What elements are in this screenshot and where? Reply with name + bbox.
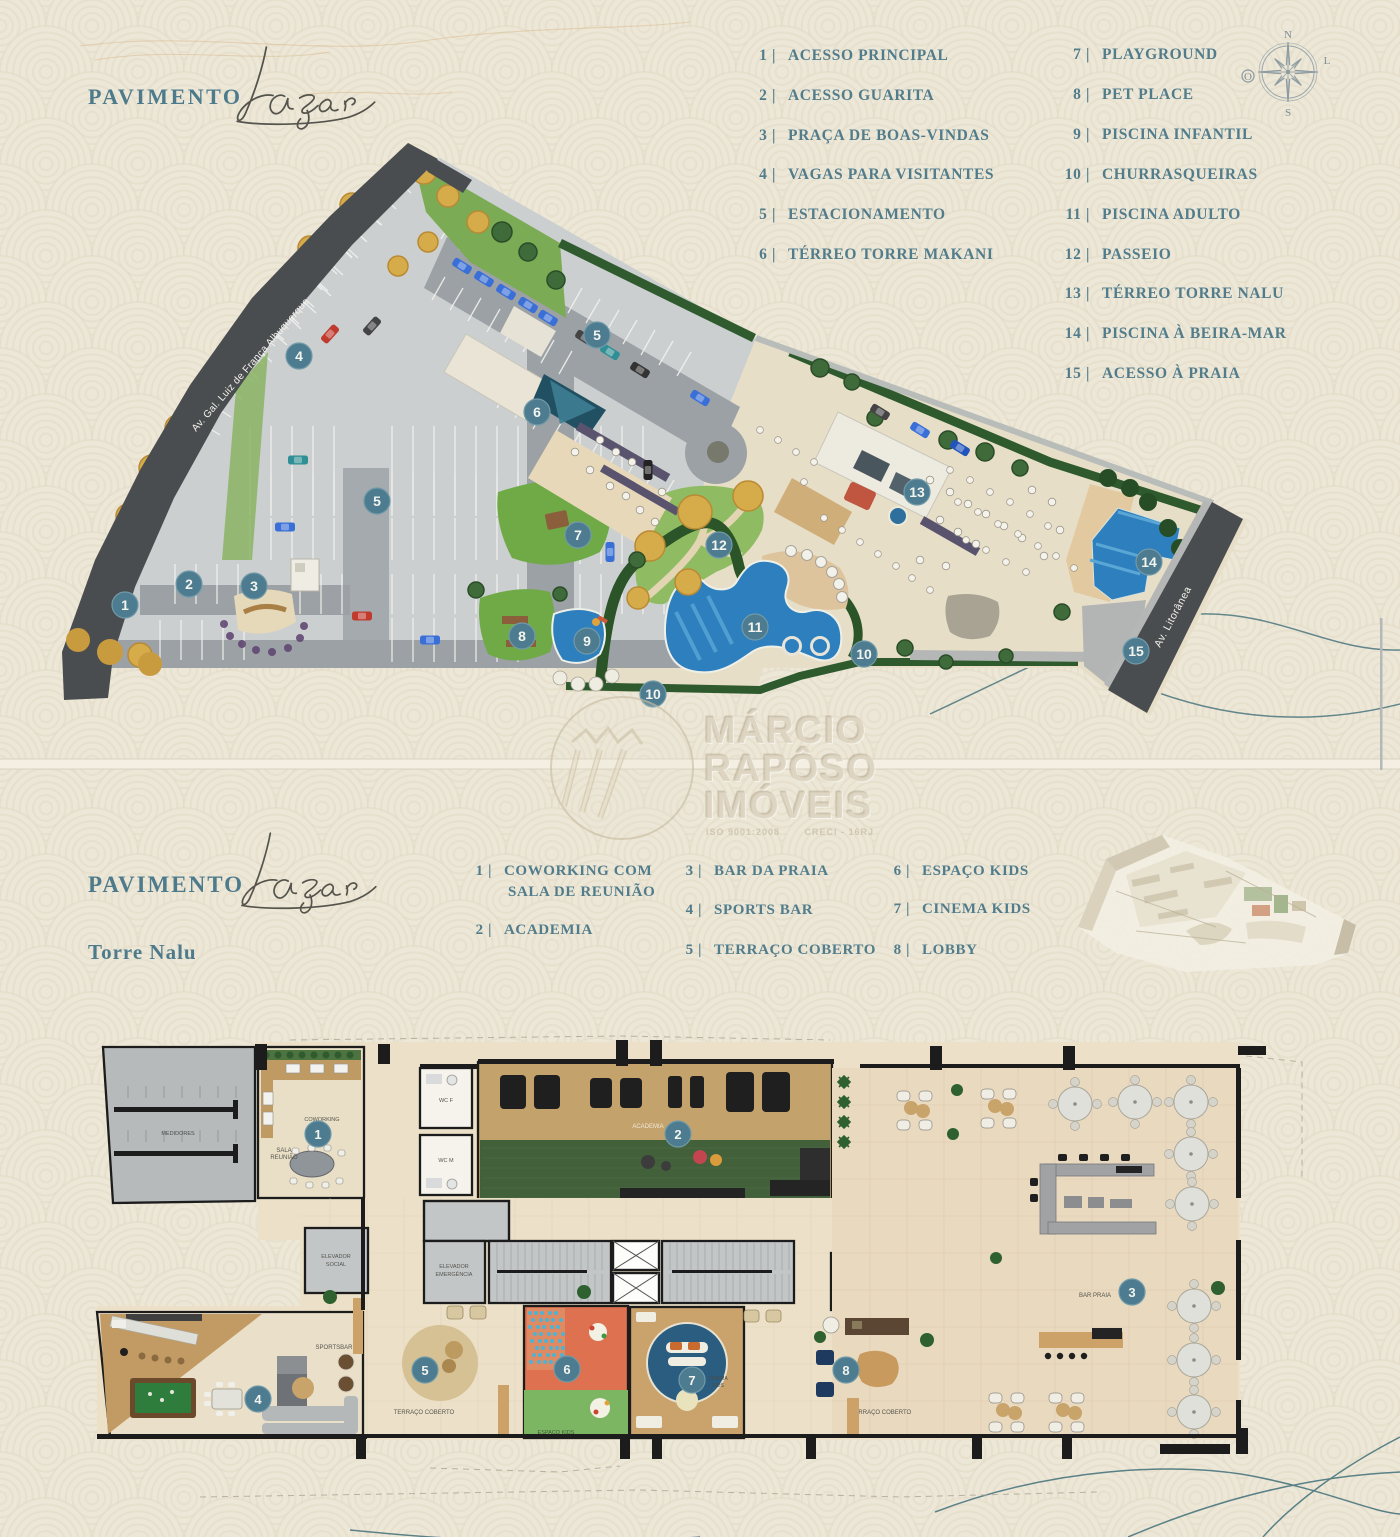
svg-text:12: 12 — [711, 537, 727, 553]
svg-text:10: 10 — [645, 686, 661, 702]
svg-text:1: 1 — [121, 597, 129, 613]
svg-text:5: 5 — [593, 327, 601, 343]
svg-text:8: 8 — [518, 628, 526, 644]
svg-text:4: 4 — [254, 1392, 262, 1407]
svg-text:6: 6 — [533, 404, 541, 420]
svg-text:15: 15 — [1128, 643, 1144, 659]
svg-text:L: L — [1324, 55, 1331, 67]
svg-text:7: 7 — [688, 1373, 695, 1388]
svg-text:EMERGÊNCIA: EMERGÊNCIA — [436, 1270, 473, 1278]
svg-text:BAR PRAIA: BAR PRAIA — [1079, 1293, 1111, 1299]
svg-text:SOCIAL: SOCIAL — [326, 1262, 346, 1268]
svg-text:SALA: SALA — [276, 1148, 291, 1154]
svg-text:TERRAÇO COBERTO: TERRAÇO COBERTO — [851, 1410, 912, 1416]
svg-text:SPORTSBAR: SPORTSBAR — [316, 1345, 354, 1351]
svg-text:14: 14 — [1141, 554, 1157, 570]
svg-text:2: 2 — [185, 576, 193, 592]
svg-text:MEDIDORES: MEDIDORES — [161, 1131, 195, 1137]
svg-text:13: 13 — [909, 484, 925, 500]
svg-text:ELEVADOR: ELEVADOR — [439, 1264, 469, 1270]
svg-text:ELEVADOR: ELEVADOR — [321, 1254, 351, 1260]
svg-text:10: 10 — [856, 646, 872, 662]
svg-text:CINEMA: CINEMA — [708, 1376, 728, 1382]
svg-text:8: 8 — [842, 1363, 849, 1378]
svg-text:3: 3 — [250, 578, 258, 594]
svg-text:WC F: WC F — [439, 1098, 454, 1104]
svg-text:WC M: WC M — [438, 1158, 454, 1164]
svg-text:7: 7 — [574, 527, 582, 543]
svg-text:3: 3 — [1128, 1285, 1135, 1300]
svg-text:5: 5 — [421, 1363, 428, 1378]
svg-text:9: 9 — [583, 633, 591, 649]
svg-text:TERRAÇO COBERTO: TERRAÇO COBERTO — [394, 1410, 455, 1416]
svg-text:N: N — [1284, 29, 1292, 41]
svg-text:11: 11 — [748, 619, 763, 635]
svg-text:1: 1 — [314, 1127, 321, 1142]
svg-text:KIDS: KIDS — [712, 1383, 724, 1389]
svg-text:O: O — [1244, 71, 1252, 83]
svg-text:5: 5 — [373, 493, 381, 509]
svg-text:6: 6 — [563, 1362, 570, 1377]
svg-text:2: 2 — [674, 1127, 681, 1142]
svg-text:S: S — [1285, 107, 1291, 119]
svg-text:ACADEMIA: ACADEMIA — [632, 1124, 663, 1130]
svg-text:REUNIÃO: REUNIÃO — [270, 1154, 298, 1161]
svg-text:4: 4 — [295, 348, 303, 364]
